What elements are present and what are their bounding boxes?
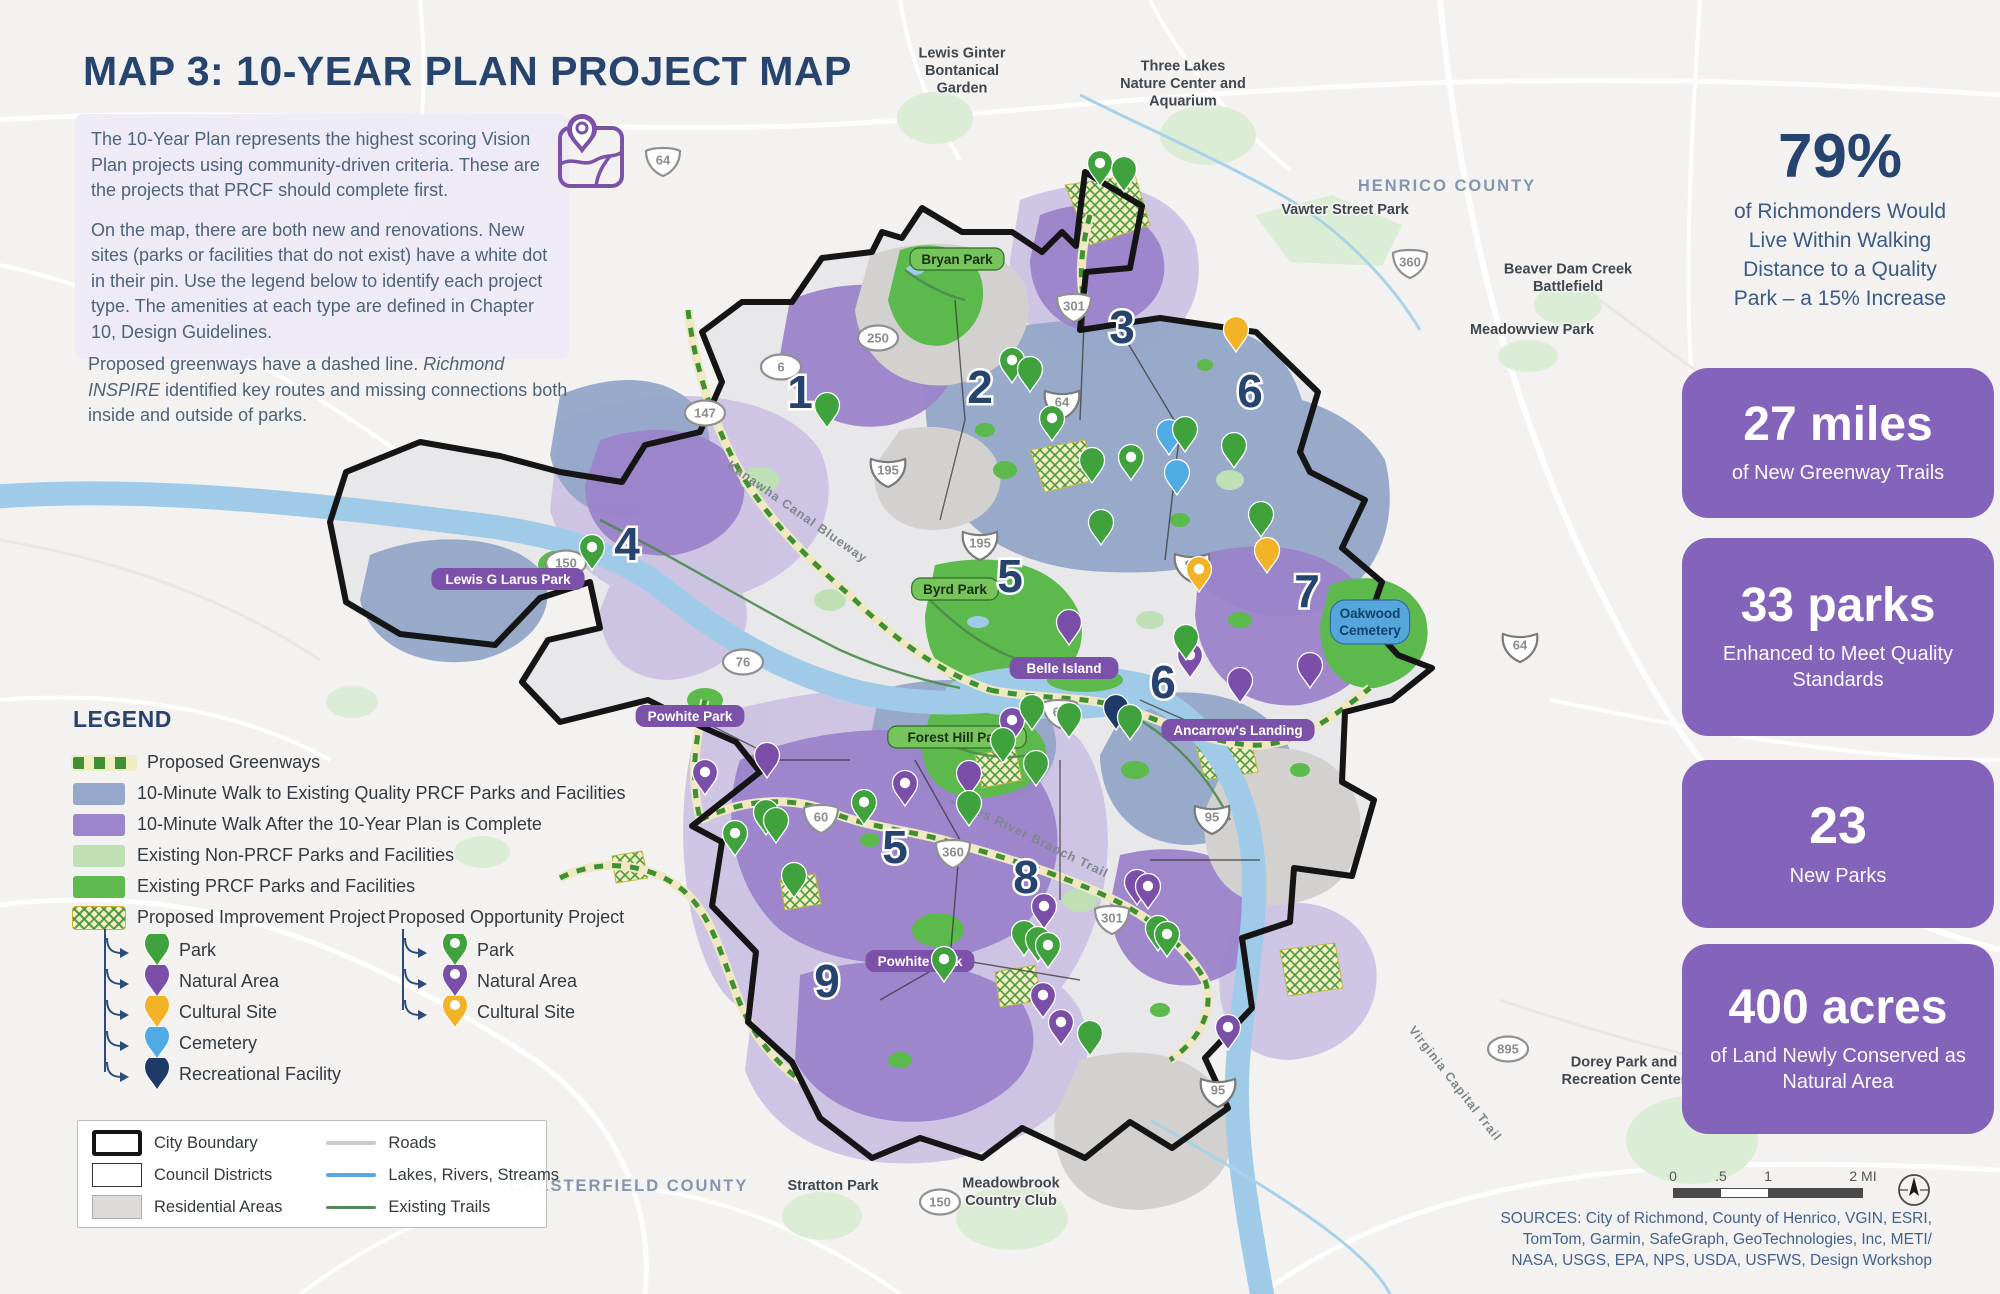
svg-text:147: 147 [694, 406, 716, 421]
road-line-swatch [326, 1141, 376, 1145]
legend-area-item: 10-Minute Walk to Existing Quality PRCF … [73, 778, 673, 809]
svg-text:6: 6 [777, 360, 784, 375]
park-pill-label: Ancarrow's Landing [1161, 719, 1314, 741]
stat-box-value: 400 acres [1729, 983, 1948, 1033]
park-pill-label: Powhite Park [866, 950, 975, 972]
branch-arrow-icon [403, 969, 433, 995]
route-shield-147: 147 [685, 401, 725, 426]
opportunity-title: Proposed Opportunity Project [388, 902, 624, 933]
legend-pin-item: Recreational Facility [105, 1059, 373, 1090]
stat-headline-value: 79% [1676, 126, 2000, 188]
legend-pin-item: Park [403, 935, 577, 966]
page-title: MAP 3: 10-YEAR PLAN PROJECT MAP [83, 48, 852, 95]
svg-text:Lewis G Larus Park: Lewis G Larus Park [445, 572, 571, 587]
stat-headline: 79% of Richmonders Would Live Within Wal… [1676, 126, 2000, 314]
svg-text:Belle Island: Belle Island [1026, 661, 1101, 676]
legend-area-item: Proposed Greenways [73, 747, 673, 778]
improvement-swatch [73, 907, 125, 929]
legend-pin-item: Park [105, 935, 373, 966]
route-shield-250: 250 [858, 326, 898, 351]
legend-area-item: 10-Minute Walk After the 10-Year Plan is… [73, 809, 673, 840]
svg-text:895: 895 [1497, 1042, 1519, 1057]
legend-pin-label: Recreational Facility [179, 1064, 341, 1085]
place-label: Meadowview Park [1470, 322, 1595, 338]
svg-text:60: 60 [814, 810, 828, 825]
improvement-title: Proposed Improvement Project [137, 907, 385, 928]
branch-arrow-icon [105, 938, 135, 964]
svg-text:95: 95 [1211, 1083, 1225, 1098]
legend-pin-label: Natural Area [477, 971, 577, 992]
svg-text:360: 360 [1399, 255, 1421, 270]
city-boundary-swatch [92, 1130, 142, 1156]
svg-text:Byrd Park: Byrd Park [923, 582, 987, 597]
svg-text:64: 64 [1513, 638, 1528, 653]
base-legend-label: Roads [388, 1134, 436, 1153]
greenway-dash-swatch [73, 757, 135, 769]
base-legend-item: Existing Trails [326, 1191, 559, 1223]
legend-pin-label: Park [477, 940, 514, 961]
legend-pin-green-new [441, 934, 469, 968]
scale-tick-label: .5 [1715, 1168, 1727, 1184]
legend-pin-label: Park [179, 940, 216, 961]
intro-paragraph-3: Proposed greenways have a dashed line. R… [88, 352, 574, 429]
district-number-7: 7 [1294, 565, 1320, 617]
county-label: HENRICO COUNTY [1358, 177, 1536, 195]
purple-swatch [73, 814, 125, 836]
svg-text:195: 195 [969, 536, 991, 551]
stat-box-value: 33 parks [1741, 581, 1936, 631]
base-legend-label: Residential Areas [154, 1198, 282, 1217]
park-pill-label: Byrd Park [912, 578, 999, 600]
legend-heading: LEGEND [73, 706, 673, 733]
place-label: MeadowbrookCountry Club [962, 1175, 1060, 1209]
base-legend-label: City Boundary [154, 1134, 258, 1153]
district-number-9: 9 [814, 955, 840, 1007]
stat-box: 400 acresof Land Newly Conserved as Natu… [1682, 944, 1994, 1134]
district-number-5: 5 [997, 550, 1023, 602]
legend-pin-blue [143, 1027, 171, 1061]
stat-box-caption: Enhanced to Meet Quality Standards [1702, 641, 1974, 693]
district-number-6: 6 [1237, 365, 1263, 417]
legend-pin-item: Natural Area [403, 966, 577, 997]
base-legend-label: Existing Trails [388, 1198, 490, 1217]
legend-pin-item: Cultural Site [403, 997, 577, 1028]
intro-panel: The 10-Year Plan represents the highest … [75, 114, 569, 359]
green-swatch [73, 876, 125, 898]
base-legend-item: Residential Areas [92, 1191, 282, 1223]
legend-pin-purple-new [441, 965, 469, 999]
scale-tick-label: 1 [1764, 1168, 1772, 1184]
legend-area-label: 10-Minute Walk to Existing Quality PRCF … [137, 783, 626, 804]
scale-bar-segments [1673, 1188, 1863, 1198]
legend-pin-label: Cultural Site [179, 1002, 277, 1023]
residential-swatch [92, 1195, 142, 1219]
legend-area-item: Existing PRCF Parks and Facilities [73, 871, 673, 902]
legend-area-item: Existing Non-PRCF Parks and Facilities [73, 840, 673, 871]
svg-text:Ancarrow's Landing: Ancarrow's Landing [1173, 723, 1302, 738]
trail-line-swatch [326, 1206, 376, 1209]
base-legend-item: Council Districts [92, 1159, 282, 1191]
base-legend-label: Lakes, Rivers, Streams [388, 1166, 559, 1185]
legend-area-label: Proposed Greenways [147, 752, 320, 773]
intro-paragraph-2: On the map, there are both new and renov… [91, 218, 553, 346]
stat-box-value: 27 miles [1743, 400, 1932, 450]
svg-text:64: 64 [656, 153, 671, 168]
place-label: Stratton Park [787, 1178, 879, 1194]
stat-box-caption: of New Greenway Trails [1732, 460, 1944, 486]
legend-pin-label: Natural Area [179, 971, 279, 992]
park-pill-label: Belle Island [1010, 657, 1119, 679]
sources-note: SOURCES: City of Richmond, County of Hen… [1372, 1208, 1932, 1271]
district-number-1: 1 [787, 366, 813, 418]
legend-area-label: 10-Minute Walk After the 10-Year Plan is… [137, 814, 542, 835]
stat-box-value: 23 [1809, 799, 1867, 854]
branch-arrow-icon [105, 969, 135, 995]
map-icon [552, 112, 630, 192]
scale-tick-label: 2 MI [1849, 1168, 1876, 1184]
svg-text:150: 150 [929, 1195, 951, 1210]
stat-box: 27 milesof New Greenway Trails [1682, 368, 1994, 518]
blue-gray-swatch [73, 783, 125, 805]
route-shield-895: 895 [1488, 1037, 1528, 1062]
council-districts-swatch [92, 1163, 142, 1187]
stat-box-caption: of Land Newly Conserved as Natural Area [1702, 1043, 1974, 1095]
light-green-swatch [73, 845, 125, 867]
route-shield-150: 150 [920, 1190, 960, 1215]
intro-paragraph-1: The 10-Year Plan represents the highest … [91, 127, 553, 204]
north-arrow-icon [1894, 1170, 1934, 1210]
legend-pin-item: Cultural Site [105, 997, 373, 1028]
scale-tick-label: 0 [1669, 1168, 1677, 1184]
park-pill-label: Lewis G Larus Park [431, 568, 584, 590]
legend-pin-label: Cemetery [179, 1033, 257, 1054]
park-pill-label: OakwoodCemetery [1330, 600, 1409, 644]
svg-text:95: 95 [1205, 810, 1219, 825]
svg-text:250: 250 [867, 331, 889, 346]
legend-panel: LEGEND Proposed Greenways10-Minute Walk … [73, 706, 673, 1090]
base-legend-item: Roads [326, 1127, 559, 1159]
legend-pin-navy [143, 1058, 171, 1092]
svg-text:Bryan Park: Bryan Park [921, 252, 993, 267]
svg-text:76: 76 [736, 655, 750, 670]
stat-box-caption: New Parks [1790, 863, 1887, 889]
svg-text:360: 360 [942, 845, 964, 860]
water-line-swatch [326, 1173, 376, 1177]
branch-arrow-icon [105, 1031, 135, 1057]
stat-box: 33 parksEnhanced to Meet Quality Standar… [1682, 538, 1994, 736]
stat-box: 23New Parks [1682, 760, 1994, 928]
legend-area-label: Existing PRCF Parks and Facilities [137, 876, 415, 897]
branch-arrow-icon [105, 1000, 135, 1026]
legend-pin-label: Cultural Site [477, 1002, 575, 1023]
legend-pin-purple [143, 965, 171, 999]
district-number-4: 4 [614, 518, 640, 570]
legend-pin-item: Cemetery [105, 1028, 373, 1059]
district-number-3: 3 [1109, 301, 1135, 353]
district-number-6: 6 [1150, 656, 1176, 708]
legend-pin-item: Natural Area [105, 966, 373, 997]
svg-text:301: 301 [1101, 911, 1123, 926]
district-number-8: 8 [1013, 851, 1039, 903]
legend-area-label: Existing Non-PRCF Parks and Facilities [137, 845, 454, 866]
opportunity-pin-list: ParkNatural AreaCultural Site [389, 935, 577, 1090]
branch-arrow-icon [403, 1000, 433, 1026]
place-label: Vawter Street Park [1281, 202, 1409, 218]
district-number-2: 2 [967, 361, 993, 413]
base-legend-item: City Boundary [92, 1127, 282, 1159]
base-legend-label: Council Districts [154, 1166, 272, 1185]
legend-pin-yellow [143, 996, 171, 1030]
legend-pin-yellow-new [441, 996, 469, 1030]
svg-text:301: 301 [1063, 299, 1085, 314]
poster: 6425030136064614719519515076956460603609… [0, 0, 2000, 1294]
park-pill-label: Bryan Park [910, 248, 1004, 270]
svg-text:195: 195 [877, 463, 899, 478]
place-label: Dorey Park andRecreation Center [1562, 1054, 1687, 1088]
branch-arrow-icon [403, 938, 433, 964]
legend-pin-green [143, 934, 171, 968]
branch-arrow-icon [105, 1062, 135, 1088]
base-legend-item: Lakes, Rivers, Streams [326, 1159, 559, 1191]
stat-headline-caption: of Richmonders Would Live Within Walking… [1722, 198, 1958, 314]
improvement-pin-list: ParkNatural AreaCultural SiteCemeteryRec… [91, 935, 373, 1090]
base-legend-panel: City BoundaryCouncil DistrictsResidentia… [77, 1120, 547, 1228]
route-shield-76: 76 [723, 650, 763, 675]
district-number-5: 5 [882, 821, 908, 873]
